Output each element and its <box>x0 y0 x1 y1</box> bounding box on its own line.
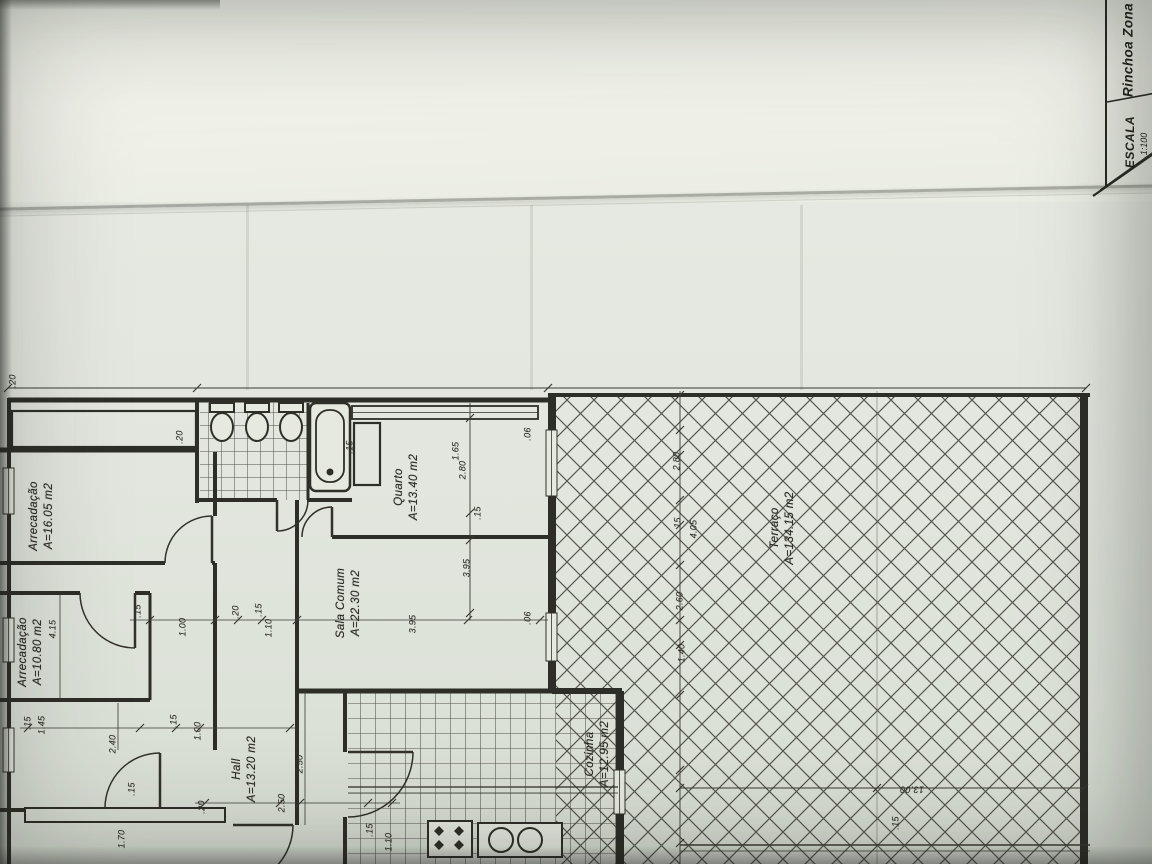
room-label-sala-comum: Sala Comum A=22.30 m2 <box>334 568 364 638</box>
washbasin-fixture <box>279 403 303 441</box>
dimension-label: .20 <box>232 605 241 618</box>
dimension-label: .15 <box>346 440 355 453</box>
room-name: Cozinha <box>583 721 598 787</box>
paper-upper-fold <box>0 0 1152 202</box>
dimension-label: 3.95 <box>463 559 472 578</box>
dimension-label: .15 <box>474 506 483 519</box>
dimension-label: 2.80 <box>459 461 468 480</box>
dimension-label: .15 <box>255 603 264 616</box>
room-area: A=13.20 m2 <box>245 736 260 802</box>
room-name: Sala Comum <box>334 568 349 638</box>
room-name: Quarto <box>392 454 407 520</box>
dimension-label: .15 <box>674 517 683 530</box>
dimension-label: .15 <box>170 714 179 727</box>
dimension-label: .06 <box>524 611 533 624</box>
dimension-label: 2.50 <box>296 755 305 774</box>
dimension-label: 1.10 <box>265 619 274 638</box>
dimension-label: 4.15 <box>49 620 58 639</box>
photo-bottom-shadow <box>0 846 1152 864</box>
dimension-label: .20 <box>176 430 185 443</box>
room-label-arrecadacao-2: Arrecadação A=10.80 m2 <box>16 617 46 687</box>
dimension-label: 1.45 <box>38 716 47 735</box>
paper-vertical-crease <box>530 205 533 390</box>
room-name: Arrecadação <box>27 481 42 551</box>
room-label-arrecadacao-1: Arrecadação A=16.05 m2 <box>27 481 57 551</box>
title-block-zone-label: Rinchoa Zona <box>1121 3 1136 97</box>
paper-vertical-crease <box>246 205 249 390</box>
dimension-label: 1.65 <box>452 442 461 461</box>
room-label-terraco: Terraço A=134.15 m2 <box>768 491 798 564</box>
photo-top-shadow <box>0 0 220 10</box>
room-name: Hall <box>230 736 245 802</box>
room-area: A=134.15 m2 <box>783 491 798 564</box>
room-label-cozinha: Cozinha A=12.95 m2 <box>583 721 613 787</box>
dimension-label: .15 <box>892 816 901 829</box>
title-block-frame <box>1086 0 1152 206</box>
room-label-hall: Hall A=13.20 m2 <box>230 736 260 802</box>
dimension-label: .15 <box>134 604 143 617</box>
floor-plan-drawing <box>0 373 1152 864</box>
dimension-label: 2.80 <box>673 452 682 471</box>
title-block: Rinchoa Zona ESCALA 1:100 <box>1086 0 1152 206</box>
bidet-fixture <box>245 403 269 441</box>
dimension-label: .20 <box>198 800 207 813</box>
room-name: Arrecadação <box>16 617 31 687</box>
floor-plan-photo: .20.20.151.652.80.153.95.06.063.954.15.1… <box>0 0 1152 864</box>
paper-vertical-crease <box>800 205 803 390</box>
room-area: A=10.80 m2 <box>31 617 46 687</box>
dimension-label: .15 <box>128 782 137 795</box>
dimension-label: .15 <box>366 823 375 836</box>
room-area: A=22.30 m2 <box>349 568 364 638</box>
room-name: Terraço <box>768 491 783 564</box>
dimension-label: .15 <box>24 716 33 729</box>
dimension-label: 2.50 <box>278 794 287 813</box>
toilet-fixture <box>210 403 234 441</box>
title-block-escala-label: ESCALA <box>1123 116 1137 168</box>
title-block-scale-value: 1:100 <box>1139 133 1149 156</box>
room-area: A=12.95 m2 <box>598 721 613 787</box>
photo-left-shadow <box>0 0 12 864</box>
dimension-label: 1.00 <box>179 618 188 637</box>
dimension-label: 1.40 <box>678 644 687 663</box>
room-label-quarto: Quarto A=13.40 m2 <box>392 454 422 520</box>
terrace-hatch-area <box>556 395 1084 864</box>
room-area: A=13.40 m2 <box>407 454 422 520</box>
dimension-label: 13.00 <box>900 785 924 794</box>
dimension-label: 2.40 <box>109 735 118 754</box>
dimension-label: 2.60 <box>676 592 685 611</box>
dimension-label: .06 <box>524 427 533 440</box>
dimension-label: 3.95 <box>409 615 418 634</box>
dimension-label: 1.00 <box>194 722 203 741</box>
room-area: A=16.05 m2 <box>42 481 57 551</box>
dimension-label: 4.05 <box>690 520 699 539</box>
